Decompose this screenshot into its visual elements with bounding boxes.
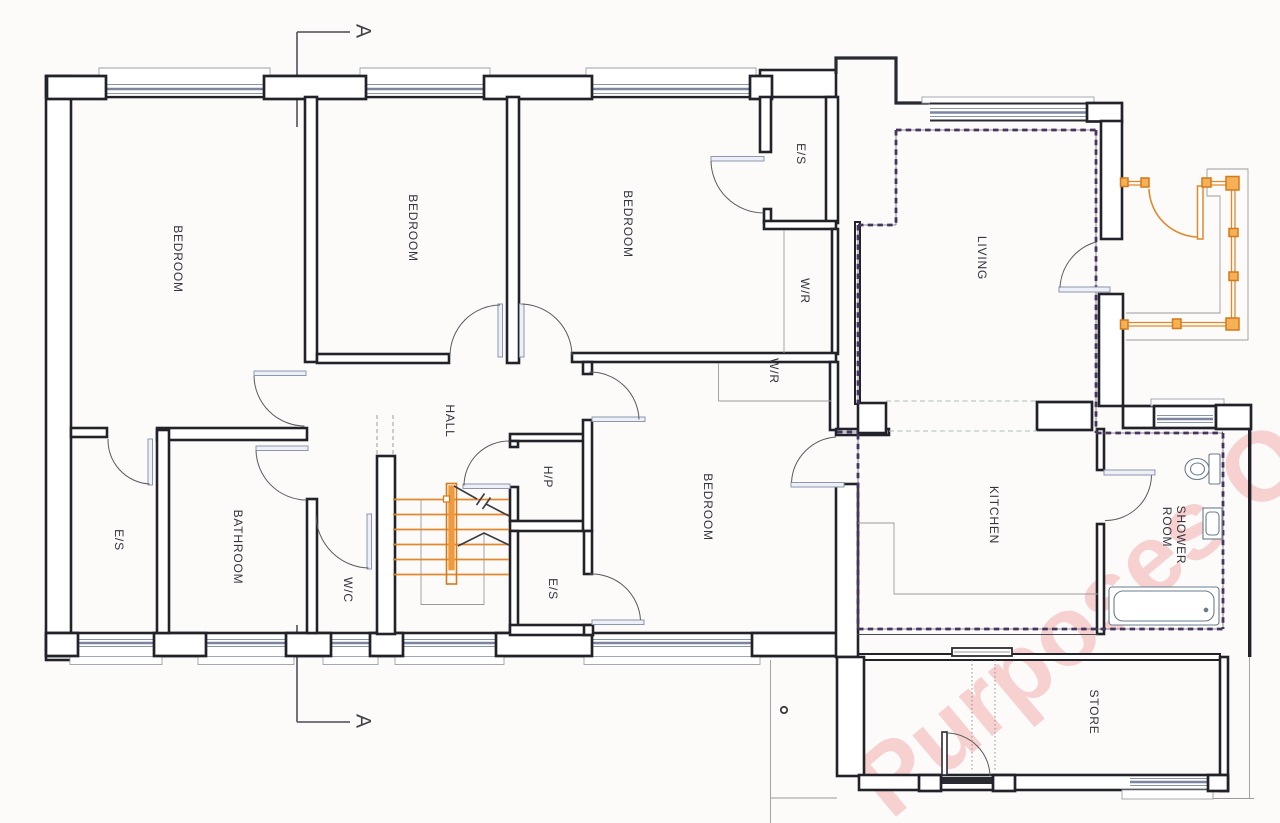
svg-text:STORE: STORE [1087,689,1101,734]
svg-text:SHOWER: SHOWER [1174,506,1188,565]
svg-text:W/C: W/C [341,577,355,603]
svg-text:HALL: HALL [443,404,457,437]
svg-text:E/S: E/S [112,529,126,551]
svg-text:BEDROOM: BEDROOM [406,194,420,262]
svg-text:H/P: H/P [541,466,555,488]
svg-text:W/R: W/R [798,278,812,304]
svg-text:E/S: E/S [794,143,808,165]
svg-text:W/R: W/R [767,358,781,384]
svg-text:E/S: E/S [546,578,560,600]
svg-text:BEDROOM: BEDROOM [621,190,635,258]
svg-text:BEDROOM: BEDROOM [171,225,185,293]
svg-text:ROOM: ROOM [1160,507,1174,548]
svg-text:BATHROOM: BATHROOM [231,510,245,585]
svg-text:KITCHEN: KITCHEN [987,486,1001,544]
svg-text:A: A [352,24,375,38]
svg-text:A: A [352,714,375,728]
svg-text:BEDROOM: BEDROOM [701,473,715,541]
svg-text:LIVING: LIVING [975,236,989,280]
